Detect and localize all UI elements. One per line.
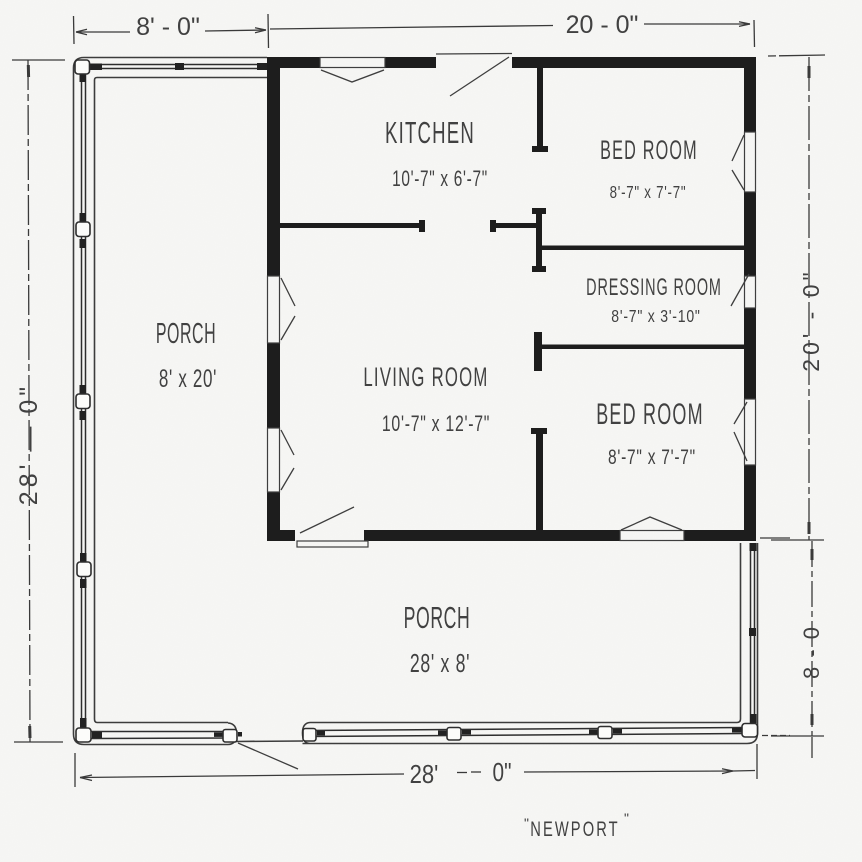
svg-text:8'-7" x 3'-10": 8'-7" x 3'-10" bbox=[611, 306, 700, 326]
svg-text:8'-7" x 7'-7": 8'-7" x 7'-7" bbox=[608, 445, 696, 469]
svg-text:DRESSING ROOM: DRESSING ROOM bbox=[586, 274, 722, 301]
svg-text:PORCH: PORCH bbox=[404, 601, 471, 635]
svg-text:20 - 0": 20 - 0" bbox=[566, 11, 639, 39]
svg-text:10'-7" x 6'-7": 10'-7" x 6'-7" bbox=[392, 167, 488, 191]
svg-text:8'-7" x 7'-7": 8'-7" x 7'-7" bbox=[610, 183, 687, 202]
svg-text:28': 28' bbox=[410, 760, 439, 789]
svg-text:PORCH: PORCH bbox=[156, 317, 216, 349]
svg-text:NEWPORT: NEWPORT bbox=[530, 817, 620, 840]
svg-text:KITCHEN: KITCHEN bbox=[385, 116, 475, 150]
svg-text:28' x 8': 28' x 8' bbox=[410, 649, 470, 678]
svg-text:8' x 20': 8' x 20' bbox=[159, 365, 217, 393]
svg-text:BED ROOM: BED ROOM bbox=[596, 399, 704, 432]
svg-text:8 - 0: 8 - 0 bbox=[799, 625, 824, 679]
svg-text:8' - 0": 8' - 0" bbox=[136, 13, 200, 41]
svg-text:": " bbox=[524, 815, 529, 831]
svg-text:10'-7" x 12'-7": 10'-7" x 12'-7" bbox=[382, 413, 490, 437]
svg-text:LIVING ROOM: LIVING ROOM bbox=[363, 362, 488, 392]
svg-text:20' - 0": 20' - 0" bbox=[798, 268, 824, 371]
svg-text:0": 0" bbox=[493, 758, 512, 787]
svg-text:BED ROOM: BED ROOM bbox=[600, 135, 698, 165]
svg-text:28' — 0": 28' — 0" bbox=[15, 383, 43, 505]
svg-text:": " bbox=[624, 810, 629, 826]
